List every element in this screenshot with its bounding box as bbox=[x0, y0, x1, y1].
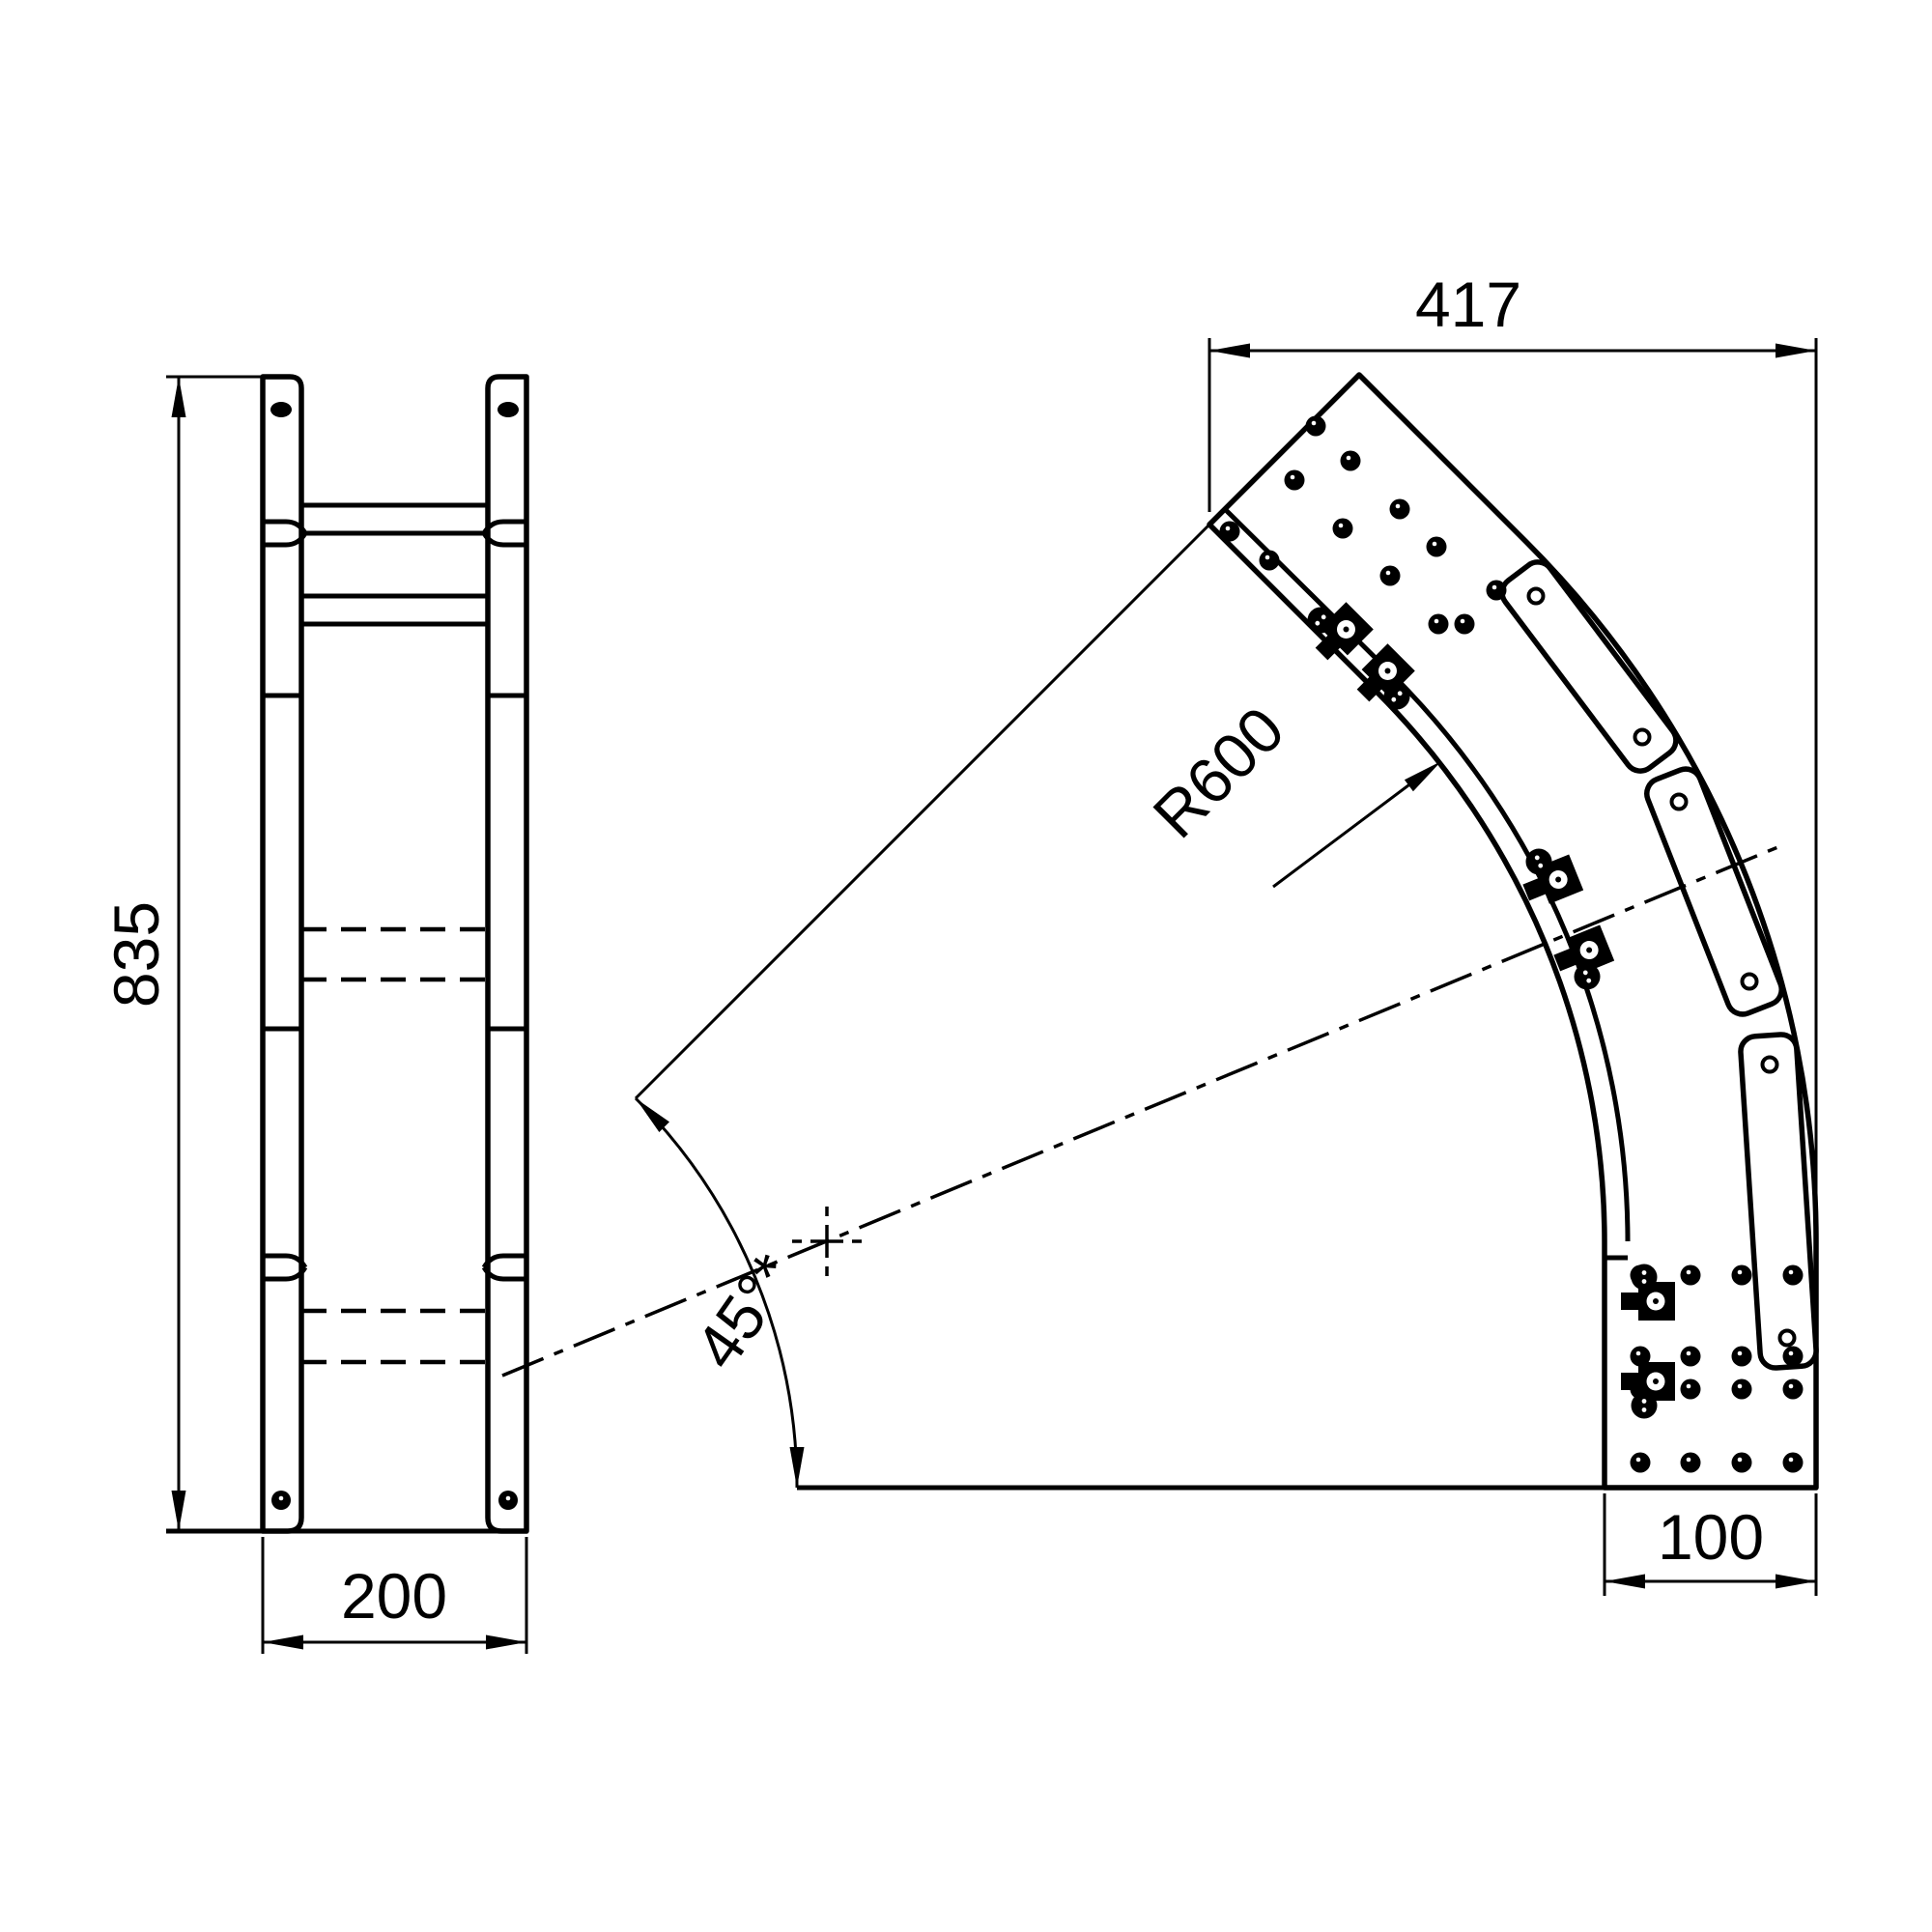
rail-hole bbox=[497, 402, 519, 417]
technical-drawing: 835 200 bbox=[0, 0, 1932, 1932]
drawing-canvas: 835 200 bbox=[0, 0, 1932, 1932]
dim-width-label: 200 bbox=[341, 1560, 447, 1632]
clamp-hole-pair bbox=[1632, 1393, 1658, 1419]
dim-height-label: 835 bbox=[100, 901, 172, 1008]
rail-hole bbox=[270, 402, 292, 417]
dim-end-width-label: 100 bbox=[1658, 1501, 1764, 1573]
clamp-hole-pair bbox=[1632, 1264, 1658, 1291]
dim-span-label: 417 bbox=[1415, 269, 1521, 340]
